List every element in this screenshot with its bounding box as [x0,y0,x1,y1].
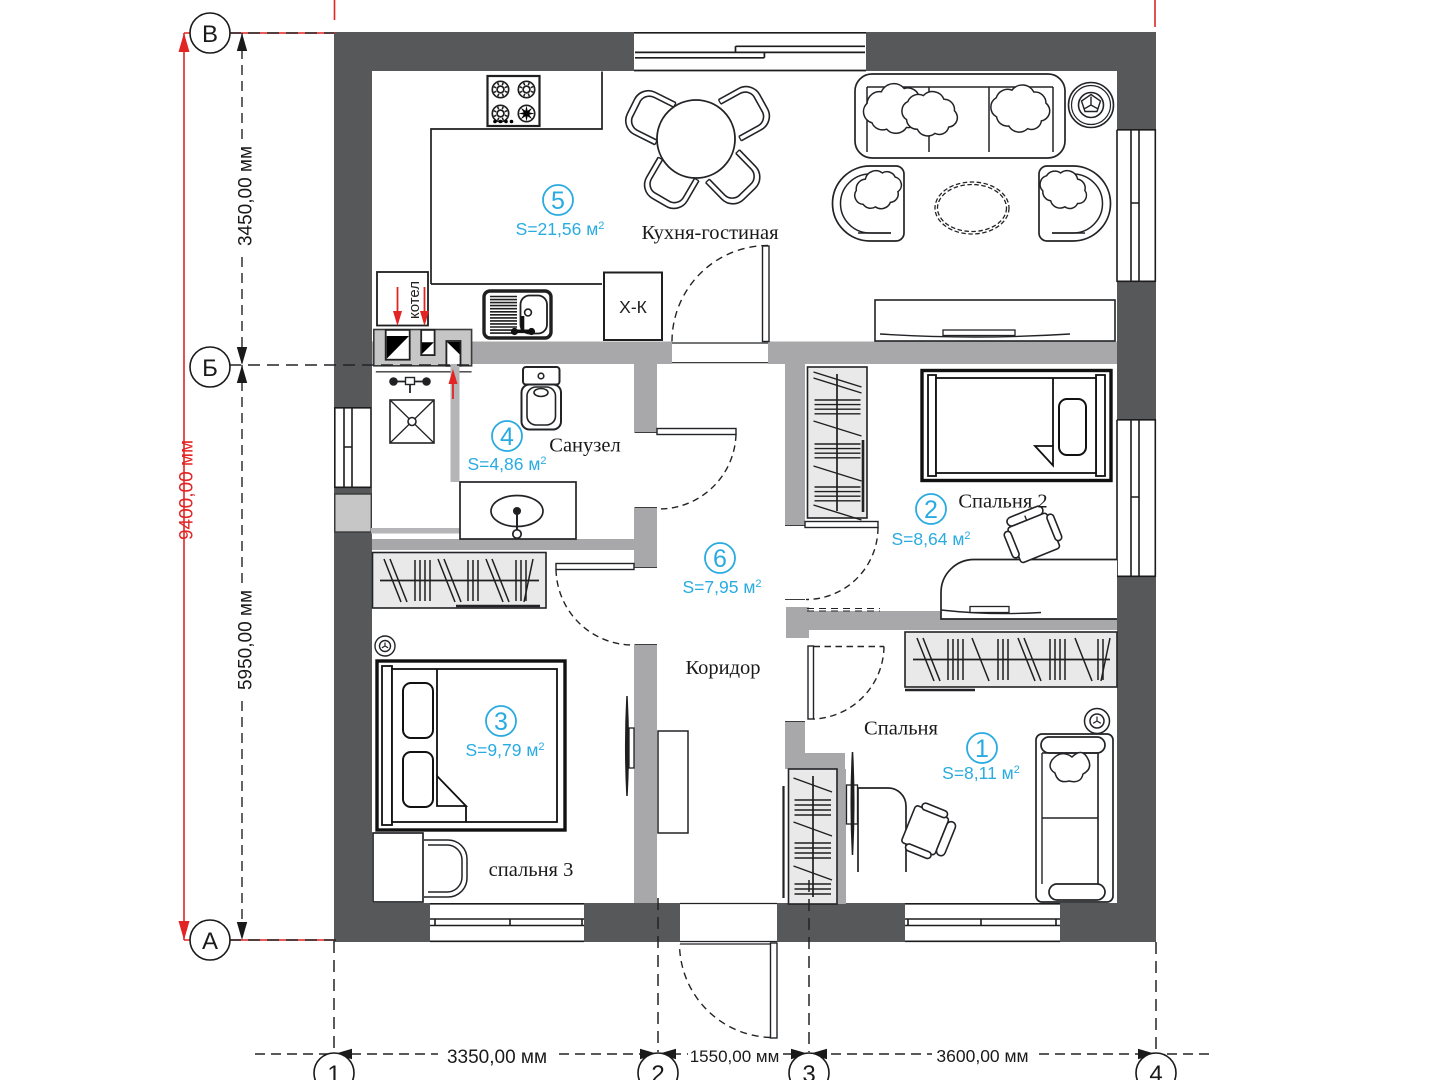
svg-text:S=8,11 м2: S=8,11 м2 [942,763,1020,783]
svg-text:котел: котел [406,281,423,319]
svg-text:Коридор: Коридор [685,657,760,679]
svg-text:6: 6 [713,545,727,573]
svg-text:4: 4 [1149,1061,1162,1080]
svg-text:1: 1 [327,1061,340,1080]
svg-text:S=8,64 м2: S=8,64 м2 [892,529,971,549]
svg-text:Б: Б [202,355,218,382]
svg-text:5950,00 мм: 5950,00 мм [236,590,257,690]
svg-text:Спальня: Спальня [864,718,938,740]
svg-text:В: В [202,21,218,48]
svg-text:9400,00 мм: 9400,00 мм [177,440,198,540]
svg-text:Кухня-гостиная: Кухня-гостиная [641,222,779,244]
svg-text:Спальня 2: Спальня 2 [958,491,1047,513]
svg-text:S=4,86 м2: S=4,86 м2 [468,454,547,474]
svg-text:5: 5 [551,187,565,215]
svg-text:3350,00 мм: 3350,00 мм [447,1047,547,1068]
svg-text:Санузел: Санузел [549,435,620,457]
svg-text:спальня 3: спальня 3 [489,859,574,881]
svg-text:2: 2 [651,1061,664,1080]
svg-text:А: А [202,928,218,955]
svg-text:Х-К: Х-К [619,297,648,317]
svg-text:S=7,95 м2: S=7,95 м2 [683,577,762,597]
svg-text:S=9,79 м2: S=9,79 м2 [466,740,545,760]
svg-text:3600,00 мм: 3600,00 мм [936,1046,1028,1066]
svg-text:3: 3 [494,708,508,736]
svg-text:2: 2 [924,496,938,524]
svg-text:1: 1 [975,735,989,763]
svg-text:S=21,56 м2: S=21,56 м2 [516,219,605,239]
svg-text:3450,00 мм: 3450,00 мм [236,146,257,246]
svg-text:1550,00 мм: 1550,00 мм [690,1047,780,1066]
svg-text:4: 4 [500,423,514,451]
svg-text:3: 3 [802,1061,815,1080]
